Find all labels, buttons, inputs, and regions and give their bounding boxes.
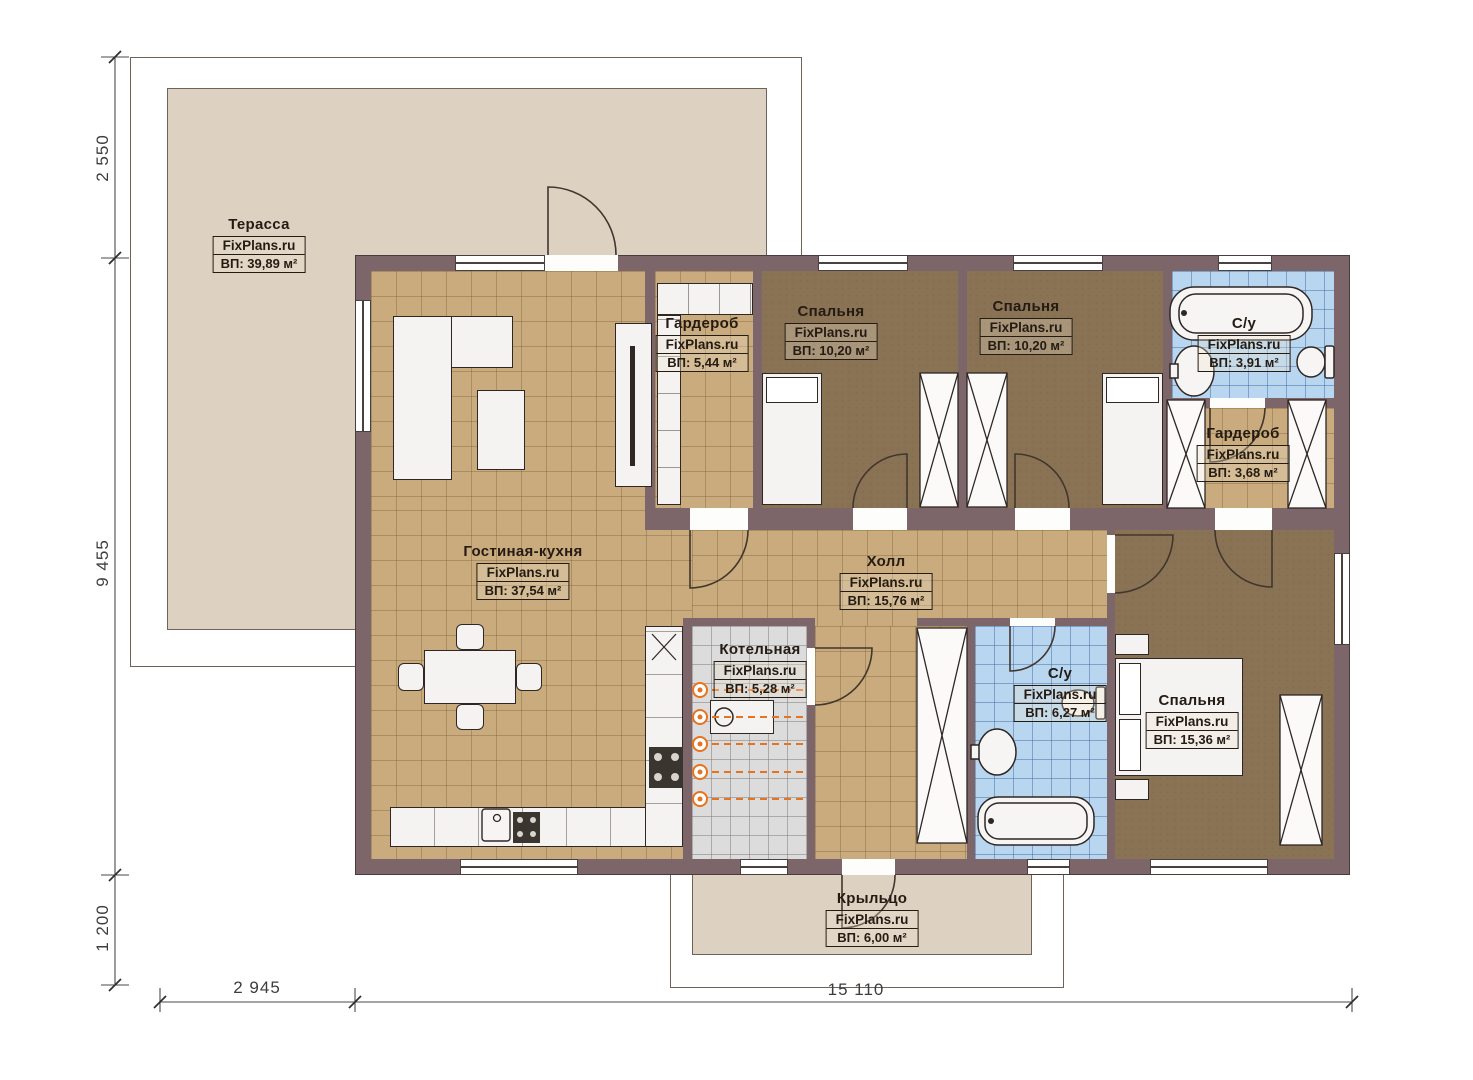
dimension-label: 15 110	[828, 980, 885, 1000]
room-label-bedroom-master: Спальня FixPlans.ru ВП: 15,36 м²	[1146, 692, 1239, 749]
room-name: Гардероб	[1197, 425, 1290, 442]
room-name: С/у	[1014, 665, 1107, 682]
room-label-wardrobe-1: Гардероб FixPlans.ru ВП: 5,44 м²	[656, 315, 749, 372]
brand-row: FixPlans.ru	[1198, 446, 1289, 464]
brand-row: FixPlans.ru	[1015, 686, 1106, 704]
brand-row: FixPlans.ru	[657, 336, 748, 354]
room-name: Холл	[840, 553, 933, 570]
room-label-bedroom-1: Спальня FixPlans.ru ВП: 10,20 м²	[785, 303, 878, 360]
room-info-box: FixPlans.ru ВП: 10,20 м²	[785, 323, 878, 360]
room-label-terrace: Терасса FixPlans.ru ВП: 39,89 м²	[213, 216, 306, 273]
room-name: Спальня	[980, 298, 1073, 315]
room-name: С/у	[1198, 315, 1291, 332]
area-row: ВП: 5,28 м²	[715, 680, 806, 697]
brand-row: FixPlans.ru	[1147, 713, 1238, 731]
dimension-label: 2 945	[233, 978, 281, 998]
area-row: ВП: 10,20 м²	[786, 342, 877, 359]
room-info-box: FixPlans.ru ВП: 5,44 м²	[656, 335, 749, 372]
room-name: Гардероб	[656, 315, 749, 332]
area-row: ВП: 15,76 м²	[841, 592, 932, 609]
area-row: ВП: 39,89 м²	[214, 255, 305, 272]
area-row: ВП: 3,91 м²	[1199, 354, 1290, 371]
room-label-bathroom-2: С/у FixPlans.ru ВП: 6,27 м²	[1014, 665, 1107, 722]
room-info-box: FixPlans.ru ВП: 3,68 м²	[1197, 445, 1290, 482]
brand-row: FixPlans.ru	[214, 237, 305, 255]
room-label-hall: Холл FixPlans.ru ВП: 15,76 м²	[840, 553, 933, 610]
room-name: Спальня	[785, 303, 878, 320]
area-row: ВП: 15,36 м²	[1147, 731, 1238, 748]
room-info-box: FixPlans.ru ВП: 6,27 м²	[1014, 685, 1107, 722]
dimension-label: 9 455	[93, 539, 113, 587]
room-info-box: FixPlans.ru ВП: 5,28 м²	[714, 661, 807, 698]
dimension-label: 1 200	[93, 904, 113, 952]
area-row: ВП: 6,27 м²	[1015, 704, 1106, 721]
room-label-bathroom-1: С/у FixPlans.ru ВП: 3,91 м²	[1198, 315, 1291, 372]
room-label-wardrobe-2: Гардероб FixPlans.ru ВП: 3,68 м²	[1197, 425, 1290, 482]
brand-row: FixPlans.ru	[715, 662, 806, 680]
room-name: Крыльцо	[826, 890, 919, 907]
room-info-box: FixPlans.ru ВП: 37,54 м²	[477, 563, 570, 600]
brand-row: FixPlans.ru	[786, 324, 877, 342]
room-name: Гостиная-кухня	[463, 543, 582, 560]
room-info-box: FixPlans.ru ВП: 3,91 м²	[1198, 335, 1291, 372]
room-info-box: FixPlans.ru ВП: 6,00 м²	[826, 910, 919, 947]
room-name: Котельная	[714, 641, 807, 658]
room-label-living-kitchen: Гостиная-кухня FixPlans.ru ВП: 37,54 м²	[463, 543, 582, 600]
brand-row: FixPlans.ru	[981, 319, 1072, 337]
dimension-label: 2 550	[93, 134, 113, 182]
room-label-bedroom-2: Спальня FixPlans.ru ВП: 10,20 м²	[980, 298, 1073, 355]
area-row: ВП: 10,20 м²	[981, 337, 1072, 354]
door-opening	[842, 859, 895, 875]
area-row: ВП: 37,54 м²	[478, 582, 569, 599]
area-row: ВП: 3,68 м²	[1198, 464, 1289, 481]
area-row: ВП: 6,00 м²	[827, 929, 918, 946]
room-info-box: FixPlans.ru ВП: 10,20 м²	[980, 318, 1073, 355]
area-row: ВП: 5,44 м²	[657, 354, 748, 371]
room-label-boiler: Котельная FixPlans.ru ВП: 5,28 м²	[714, 641, 807, 698]
floor-plan-canvas: 2 550 9 455 1 200 2 945 15 110 Терасса F…	[0, 0, 1473, 1080]
room-info-box: FixPlans.ru ВП: 15,36 м²	[1146, 712, 1239, 749]
brand-row: FixPlans.ru	[827, 911, 918, 929]
brand-row: FixPlans.ru	[841, 574, 932, 592]
room-info-box: FixPlans.ru ВП: 39,89 м²	[213, 236, 306, 273]
room-label-porch: Крыльцо FixPlans.ru ВП: 6,00 м²	[826, 890, 919, 947]
room-info-box: FixPlans.ru ВП: 15,76 м²	[840, 573, 933, 610]
brand-row: FixPlans.ru	[478, 564, 569, 582]
door-opening	[545, 255, 618, 271]
room-name: Спальня	[1146, 692, 1239, 709]
room-name: Терасса	[213, 216, 306, 233]
brand-row: FixPlans.ru	[1199, 336, 1290, 354]
